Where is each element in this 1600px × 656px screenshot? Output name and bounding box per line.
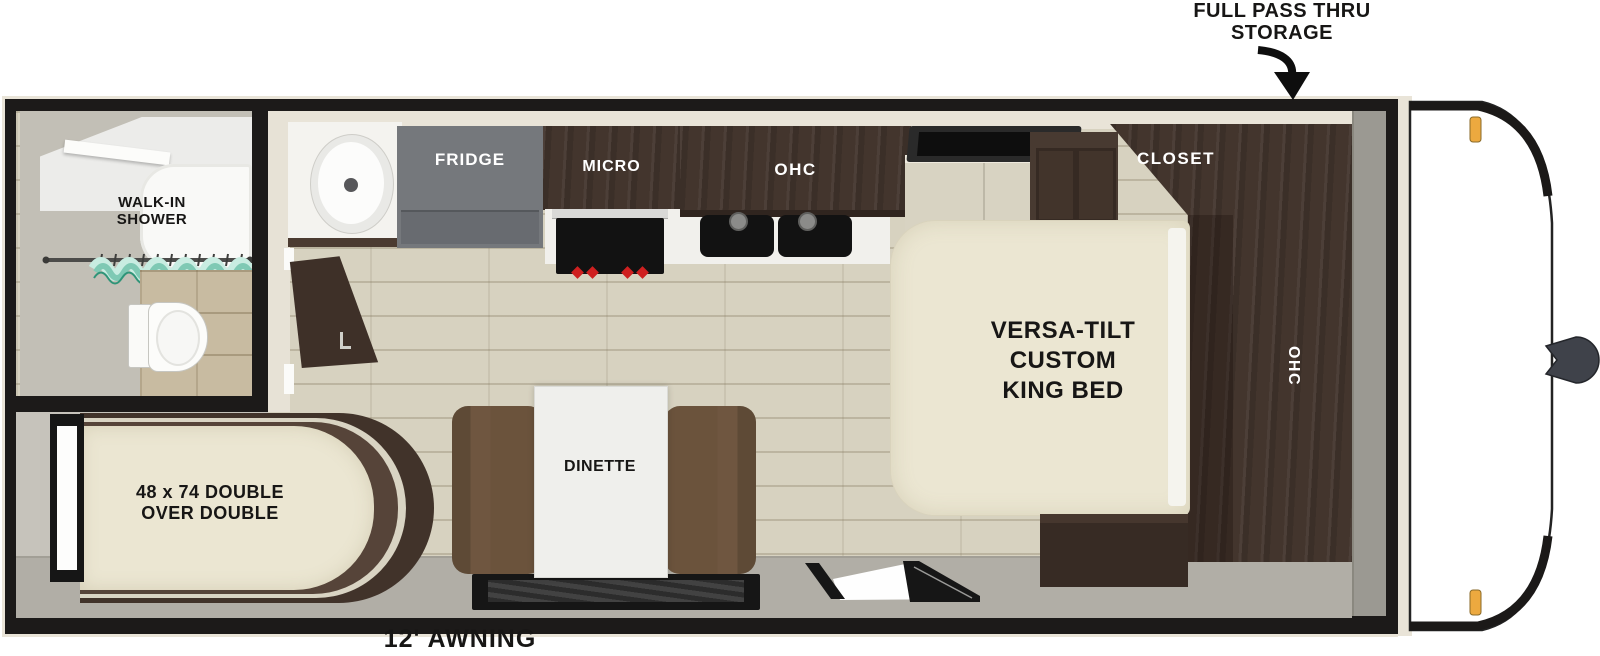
fridge-door	[401, 212, 539, 244]
vanity-sink-drain	[344, 178, 358, 192]
toilet-seat	[156, 310, 200, 366]
bathroom-wall-vertical	[252, 99, 268, 412]
fridge-label: FRIDGE	[397, 150, 543, 170]
closet-label: CLOSET	[1106, 149, 1246, 169]
bedside-cabinet-door-left	[1036, 148, 1076, 222]
bunk-bed-line2: OVER DOUBLE	[85, 503, 335, 524]
marker-light-top	[1470, 117, 1481, 142]
bunk-window-pane	[57, 426, 77, 570]
front-counter-seam	[983, 163, 985, 223]
kitchen-ohc-label: OHC	[680, 160, 911, 180]
fridge	[397, 126, 543, 248]
walk-in-shower-label: WALK-IN SHOWER	[92, 194, 212, 229]
hitch-coupler	[1546, 337, 1599, 383]
bunk-bed-line1: 48 x 74 DOUBLE	[85, 482, 335, 503]
king-bed-line2: CUSTOM	[928, 346, 1198, 376]
pass-thru-line1: FULL PASS THRU	[1162, 0, 1402, 22]
marker-light-bottom	[1470, 590, 1481, 615]
dinette-label: DINETTE	[534, 458, 666, 476]
entry-door	[798, 553, 988, 611]
front-cap	[1398, 96, 1600, 636]
dinette-bench-left	[452, 406, 544, 574]
bathroom-door-jamb-bottom	[284, 364, 294, 394]
king-bed-label: VERSA-TILT CUSTOM KING BED	[928, 316, 1198, 406]
micro-label: MICRO	[543, 158, 680, 176]
vanity-base-lip	[288, 238, 402, 247]
cooktop	[556, 218, 664, 274]
walk-in-shower-line2: SHOWER	[92, 211, 212, 228]
pass-thru-callout: FULL PASS THRU STORAGE	[1162, 0, 1402, 44]
front-interior-wall	[1352, 111, 1386, 616]
bunk-bed-label: 48 x 74 DOUBLE OVER DOUBLE	[85, 482, 335, 523]
wardrobe-ohc-label: OHC	[1282, 336, 1302, 396]
floorplan-canvas: WALK-IN SHOWER 48 x 74 DOUBLE OVER DOUBL…	[0, 0, 1600, 656]
pass-thru-line2: STORAGE	[1162, 22, 1402, 44]
door-handle-bar	[340, 346, 351, 349]
nightstand	[1040, 514, 1188, 587]
awning-label: 12' AWNING	[320, 625, 600, 654]
dinette-bench-right	[664, 406, 756, 574]
bedside-cabinet	[1030, 132, 1118, 224]
king-bed-line1: VERSA-TILT	[928, 316, 1198, 346]
king-bed-line3: KING BED	[928, 376, 1198, 406]
dinette-table	[534, 386, 668, 578]
bathroom-wall-horizontal	[5, 396, 268, 412]
kitchen-faucet-left	[729, 212, 748, 231]
dinette-window-glass	[488, 580, 744, 602]
curved-arrow-icon	[1244, 46, 1316, 102]
walk-in-shower-line1: WALK-IN	[92, 194, 212, 211]
kitchen-faucet-right	[798, 212, 817, 231]
